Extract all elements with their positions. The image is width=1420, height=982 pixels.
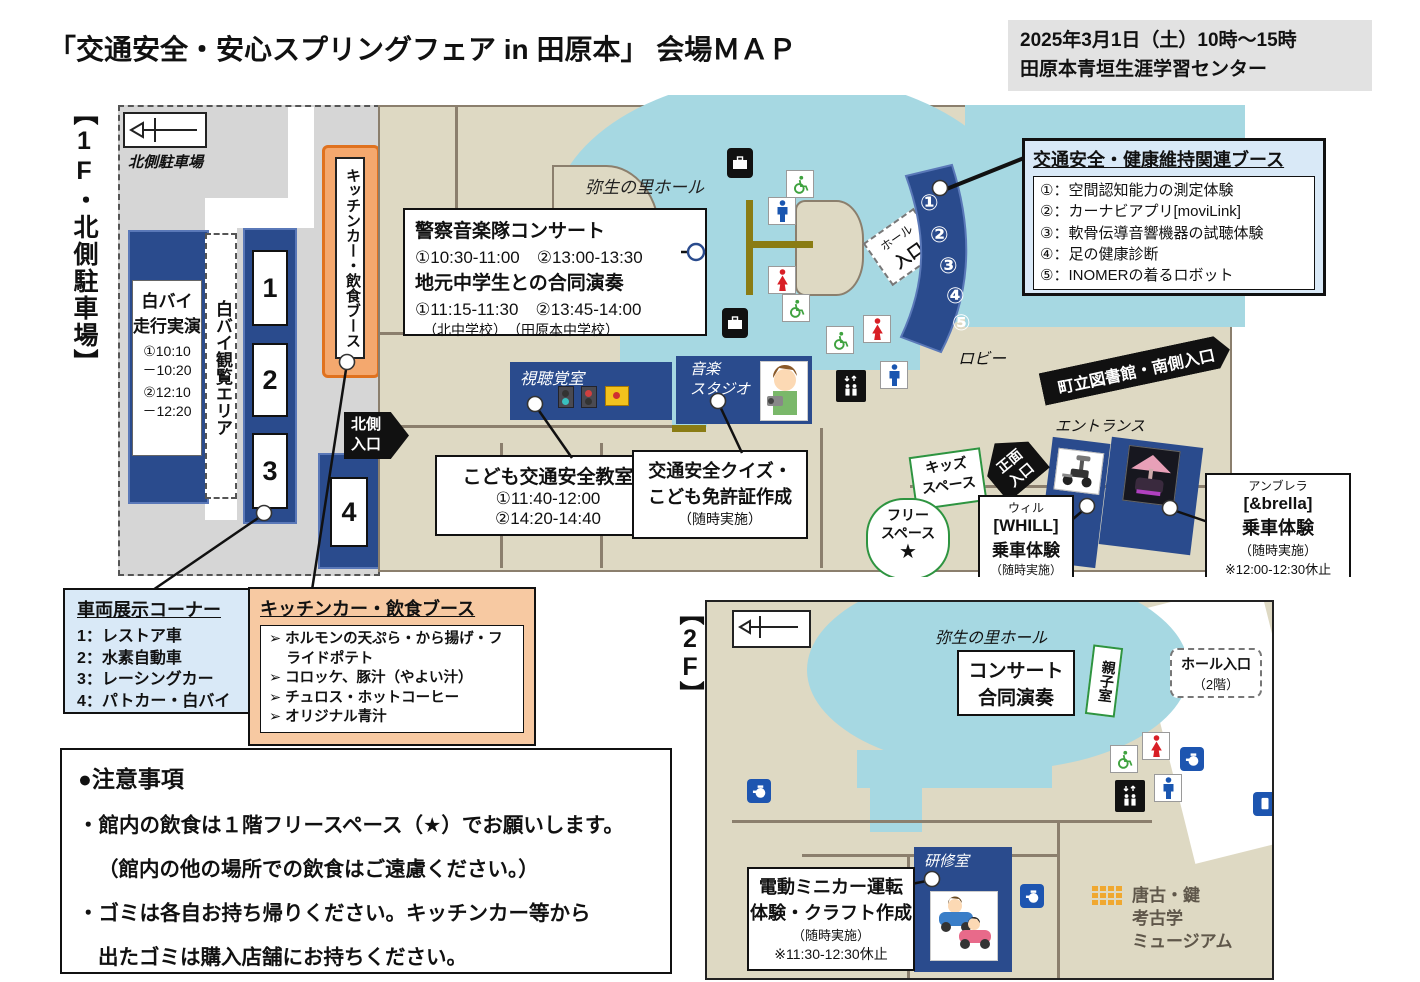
vehicle-stand-4: 4 — [330, 477, 368, 547]
museum-label: 唐古・鍵 考古学 ミュージアム — [1132, 885, 1232, 954]
signal-icons — [558, 386, 629, 413]
hall-entrance-bubble-2f: ホール入口 （2階） — [1170, 648, 1262, 698]
wheelchair-icon — [826, 326, 854, 354]
notes-title: ●注意事項 — [78, 760, 654, 794]
locker-icon — [722, 308, 748, 338]
demo-time-2a: ②12:10 — [133, 384, 201, 401]
vehicle-corner-legend: 車両展示コーナー 1：レストア車 2：水素自動車 3：レーシングカー 4：パトカ… — [63, 588, 269, 714]
hall-2f-band — [857, 750, 1052, 788]
hall-center-block — [795, 200, 864, 296]
museum-line1: 唐古・鍵 — [1132, 885, 1232, 908]
concert-callout-box: 警察音楽隊コンサート ①10:30-11:00 ②13:00-13:30 地元中… — [403, 208, 707, 336]
booth-number-5: ⑤ — [952, 312, 971, 334]
hot-water-icon — [1180, 747, 1204, 771]
free-space-line1: フリー — [868, 506, 948, 524]
mens-restroom-icon — [880, 361, 908, 389]
music-studio-zone: 音楽 スタジオ — [676, 356, 812, 424]
concert-2f-line1: コンサート — [959, 656, 1073, 683]
health-booth-item-2: ②：カーナビアプリ[moviLink] — [1040, 201, 1308, 222]
door-bar — [672, 425, 706, 432]
notes-line1: ・館内の飲食は１階フリースペース（★）でお願いします。 — [78, 808, 654, 838]
wheelchair-icon — [782, 294, 810, 322]
joint-performance-schools: （北中学校） （田原本中学校） — [415, 320, 695, 340]
floor1-map: 【1F・北側駐車場】 北側駐車場 白バイ 走行実演 ①10:10 －10:20 … — [60, 95, 1362, 577]
womens-restroom-icon — [768, 266, 796, 294]
hall-2f-stair — [870, 784, 922, 832]
brella-photo — [1122, 445, 1180, 507]
brella-line3: 乗車体験 — [1207, 514, 1349, 540]
joint-performance-times: ①11:15-11:30 ②13:45-14:00 — [415, 295, 695, 320]
demo-time-2b: －12:20 — [133, 401, 201, 421]
quiz-line1: 交通安全クイズ・ — [634, 457, 806, 483]
kitchen-car-legend: キッチンカー・飲食ブース ➢ ホルモンの天ぷら・から揚げ・フライドポテト ➢ コ… — [248, 587, 536, 746]
lobby-label: ロビー — [958, 345, 1006, 369]
wheelchair-icon — [1110, 745, 1138, 773]
kids-class-time1: ①11:40-12:00 — [437, 489, 659, 509]
kitchen-item-1: ➢ ホルモンの天ぷら・から揚げ・フライドポテト — [269, 630, 515, 669]
wall — [1057, 820, 1060, 978]
hall-entrance-2f-line1: ホール入口 — [1172, 654, 1260, 674]
minicar-illustration — [930, 891, 998, 961]
event-date-box: 2025年3月1日（土）10時～15時 田原本青垣生涯学習センター — [1008, 20, 1372, 91]
health-booth-title: 交通安全・健康維持関連ブース — [1033, 146, 1315, 172]
wall — [820, 428, 823, 568]
music-studio-illustration — [760, 361, 808, 421]
joint-performance-title: 地元中学生との合同演奏 — [415, 268, 695, 295]
minicar-line1: 電動ミニカー運転 — [749, 873, 913, 899]
mens-restroom-icon — [768, 197, 796, 225]
hall-entrance-2f-line2: （2階） — [1172, 674, 1260, 693]
event-date: 2025年3月1日（土）10時～15時 — [1020, 27, 1360, 56]
wall — [732, 820, 1152, 823]
door-bar — [753, 241, 813, 248]
floor2-map: 弥生の里ホール コンサート 合同演奏 親子室 ホール入口 （2階） 研修室 — [705, 600, 1274, 980]
booth-number-1: ① — [920, 192, 939, 214]
vehicle-item-1: 1：レストア車 — [77, 626, 255, 648]
vehicle-stand-3: 3 — [252, 433, 288, 509]
demo-time-1a: ①10:10 — [133, 343, 201, 360]
free-space-line2: スペース — [868, 524, 948, 542]
free-space-zone: フリー スペース ★ — [866, 498, 950, 577]
hot-water-icon — [747, 779, 771, 803]
hot-water-icon — [1020, 884, 1044, 908]
elevator-icon — [1115, 780, 1145, 812]
booth-number-3: ③ — [939, 255, 958, 277]
kids-class-time2: ②14:20-14:40 — [437, 509, 659, 529]
kitchen-legend-title: キッチンカー・飲食ブース — [260, 595, 524, 621]
north-compass-icon — [123, 112, 207, 148]
motorcycle-demo-title2: 走行実演 — [133, 312, 201, 337]
health-booth-item-5: ⑤：INOMERの着るロボット — [1040, 265, 1308, 286]
kitchen-item-2: ➢ コロッケ、豚汁（やよい汁） — [269, 669, 515, 689]
womens-restroom-icon — [1142, 732, 1170, 760]
training-room-label: 研修室 — [914, 847, 1012, 871]
whill-callout: ウィル [WHILL] 乗車体験 （随時実施） — [978, 495, 1074, 577]
booth-number-4: ④ — [946, 285, 965, 307]
health-booth-item-3: ③：軟骨伝導音響機器の試聴体験 — [1040, 223, 1308, 244]
kitchen-item-3: ➢ チュロス・ホットコーヒー — [269, 689, 515, 709]
brella-booth-zone — [1099, 437, 1203, 555]
museum-line3: ミュージアム — [1132, 931, 1232, 954]
brella-callout: アンブレラ [&brella] 乗車体験 （随時実施） ※12:00-12:30… — [1205, 473, 1351, 577]
motorcycle-demo-label: 白バイ 走行実演 ①10:10 －10:20 ②12:10 －12:20 — [132, 280, 202, 456]
health-booth-items: ①：空間認知能力の測定体験 ②：カーナビアプリ[moviLink] ③：軟骨伝導… — [1033, 176, 1315, 290]
notes-line2: （館内の他の場所での飲食はご遠慮ください。） — [78, 852, 654, 882]
health-booth-item-4: ④：足の健康診断 — [1040, 244, 1308, 265]
parking-label: 北側駐車場 — [128, 151, 203, 172]
locker-icon — [727, 148, 753, 178]
floor2-section-label: 【2F】 — [672, 600, 708, 706]
museum-grid-icon — [1092, 886, 1126, 912]
vehicle-stand-1: 1 — [252, 250, 288, 326]
booth-number-2: ② — [930, 224, 949, 246]
quiz-callout: 交通安全クイズ・ こども免許証作成 （随時実施） — [632, 450, 808, 539]
concert-times: ①10:30-11:00 ②13:00-13:30 — [415, 243, 695, 268]
wall — [378, 425, 674, 428]
elevator-icon — [836, 370, 866, 402]
whill-line2: [WHILL] — [980, 516, 1072, 536]
concert-2f-box: コンサート 合同演奏 — [957, 650, 1075, 716]
minicar-line2: 体験・クラフト作成 — [749, 899, 913, 925]
whill-line1: ウィル — [980, 499, 1072, 516]
womens-restroom-icon — [863, 315, 891, 343]
quiz-line2: こども免許証作成 — [634, 483, 806, 509]
motorcycle-demo-title1: 白バイ — [133, 287, 201, 312]
concert-title: 警察音楽隊コンサート — [415, 216, 695, 243]
brella-line5: ※12:00-12:30休止 — [1207, 559, 1349, 577]
minicar-line3: （随時実施） — [749, 925, 913, 944]
quiz-line3: （随時実施） — [634, 509, 806, 529]
museum-line2: 考古学 — [1132, 908, 1232, 931]
notes-box: ●注意事項 ・館内の飲食は１階フリースペース（★）でお願いします。 （館内の他の… — [60, 748, 672, 974]
vehicle-item-4: 4：パトカー・白バイ — [77, 691, 255, 713]
whill-line3: 乗車体験 — [980, 536, 1072, 561]
whill-photo — [1053, 448, 1104, 495]
brella-line2: [&brella] — [1207, 494, 1349, 514]
motorcycle-viewing-area: 白バイ観覧エリア — [205, 233, 237, 499]
page-title: 「交通安全・安心スプリングフェア in 田原本」 会場ＭＡＰ — [48, 28, 796, 68]
brella-line1: アンブレラ — [1207, 477, 1349, 494]
health-booth-legend: 交通安全・健康維持関連ブース ①：空間認知能力の測定体験 ②：カーナビアプリ[m… — [1022, 138, 1326, 296]
hall-label-1f: 弥生の里ホール — [585, 173, 704, 198]
training-room-zone: 研修室 — [914, 847, 1012, 972]
vehicle-stand-2: 2 — [252, 343, 288, 417]
kids-class-callout: こども交通安全教室 ①11:40-12:00 ②14:20-14:40 — [435, 455, 661, 536]
facility-icon — [1253, 792, 1274, 816]
minicar-line4: ※11:30-12:30休止 — [749, 944, 913, 964]
free-space-star: ★ — [868, 542, 948, 562]
event-venue: 田原本青垣生涯学習センター — [1020, 56, 1360, 85]
mens-restroom-icon — [1154, 774, 1182, 802]
concert-2f-line2: 合同演奏 — [959, 683, 1073, 710]
beacon-icon — [605, 386, 629, 406]
health-booth-item-1: ①：空間認知能力の測定体験 — [1040, 180, 1308, 201]
floor1-section-label: 【1F・北側駐車場】 — [66, 100, 102, 376]
av-room-label: 視聴覚室 — [510, 362, 672, 389]
signal-icon — [558, 386, 574, 408]
minicar-callout: 電動ミニカー運転 体験・クラフト作成 （随時実施） ※11:30-12:30休止 — [747, 867, 915, 971]
hall-label-2f: 弥生の里ホール — [935, 624, 1047, 648]
kids-class-title: こども交通安全教室 — [437, 462, 659, 489]
vehicle-item-3: 3：レーシングカー — [77, 669, 255, 691]
notes-line4: 出たゴミは購入店舗にお持ちください。 — [78, 940, 654, 970]
event-map-page: 「交通安全・安心スプリングフェア in 田原本」 会場ＭＡＰ 2025年3月1日… — [0, 0, 1420, 982]
door-bar — [746, 200, 753, 295]
vehicle-corner-title: 車両展示コーナー — [77, 596, 255, 622]
wheelchair-icon — [786, 170, 814, 198]
north-compass-icon-2f — [732, 610, 811, 648]
whill-line4: （随時実施） — [980, 561, 1072, 577]
vehicle-item-2: 2：水素自動車 — [77, 648, 255, 670]
kitchen-car-booth-label: キッチンカー・飲食ブース — [335, 157, 365, 359]
signal-icon — [581, 386, 597, 408]
av-room-zone: 視聴覚室 — [510, 362, 672, 420]
demo-time-1b: －10:20 — [133, 360, 201, 380]
notes-line3: ・ゴミは各自お持ち帰りください。キッチンカー等から — [78, 896, 654, 926]
entrance-label: エントランス — [1055, 415, 1145, 436]
brella-line4: （随時実施） — [1207, 540, 1349, 559]
kitchen-item-4: ➢ オリジナル青汁 — [269, 708, 515, 728]
